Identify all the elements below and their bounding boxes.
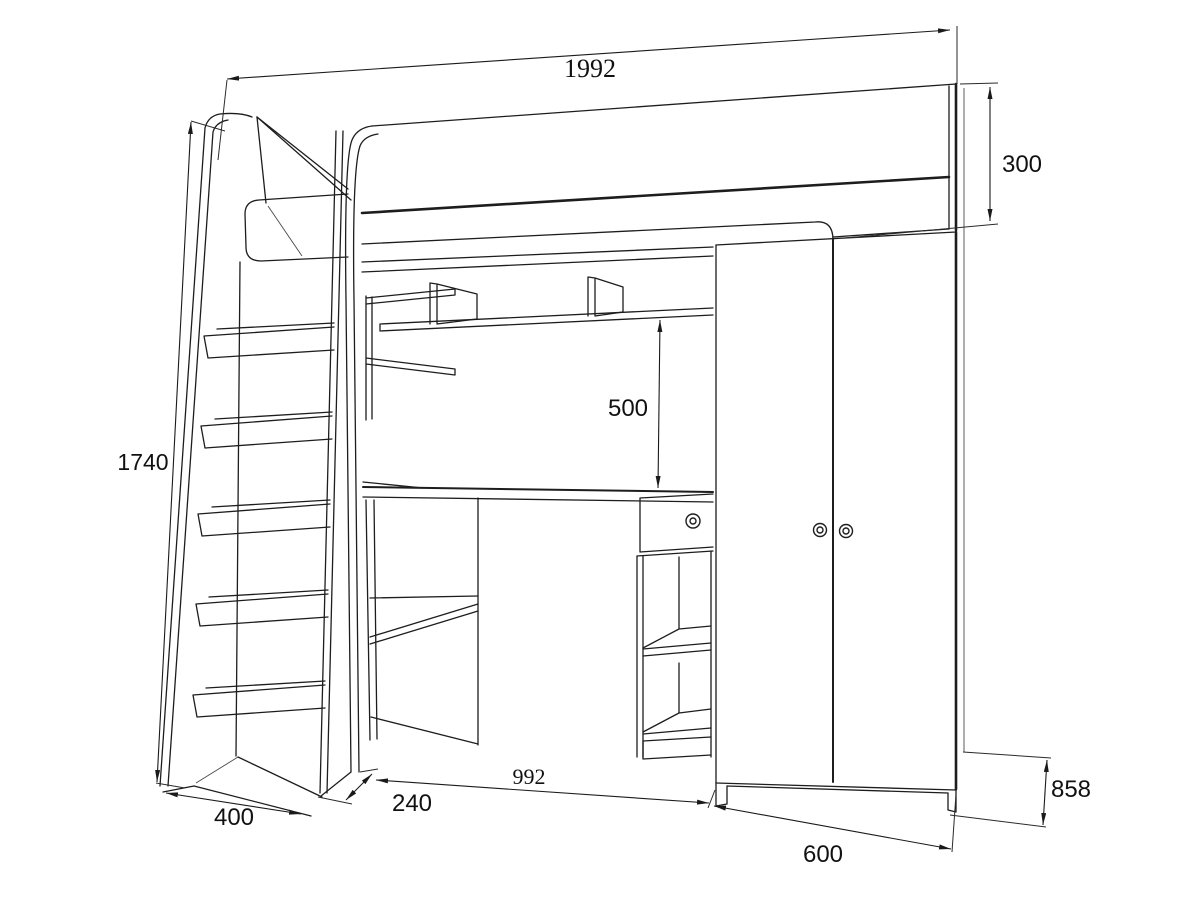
dim-label-992: 992 [513, 764, 546, 789]
dimension-ladder-depth: 400 [166, 793, 301, 831]
dim-label-240: 240 [392, 790, 432, 817]
drawing-canvas: 1992 300 1740 500 400 240 992 600 [0, 0, 1200, 899]
wardrobe-left-knob-icon [814, 524, 827, 537]
loft-bed-dimension-drawing: 1992 300 1740 500 400 240 992 600 [0, 0, 1200, 899]
pillow [257, 117, 351, 256]
ladder-steps [193, 323, 334, 717]
drawer-knob-icon [686, 514, 700, 528]
wardrobe [716, 232, 956, 812]
side-shelf-unit [366, 289, 455, 420]
dim-label-300: 300 [1002, 151, 1042, 178]
dim-label-500: 500 [608, 395, 648, 422]
dimension-shelf-to-desk: 500 [608, 320, 660, 488]
dim-label-600: 600 [803, 841, 843, 868]
desk [363, 482, 713, 745]
dimension-guard-rail-height: 300 [845, 83, 1042, 238]
ladder-rail [320, 131, 343, 793]
dim-label-1740: 1740 [117, 449, 168, 475]
drawer-knob-dot-icon [690, 518, 696, 524]
bed-post [346, 126, 378, 772]
dimension-ladder-offset: 240 [318, 769, 432, 817]
dimension-wardrobe-side: 858 [950, 752, 1091, 827]
dim-label-400: 400 [214, 804, 254, 831]
dim-label-1992: 1992 [564, 54, 616, 83]
cubby-shelves [637, 551, 713, 759]
dimension-overall-width: 1992 [218, 26, 957, 160]
wardrobe-right-knob-icon [840, 525, 853, 538]
wall-shelf [380, 277, 713, 331]
bed-guard-panel [362, 84, 964, 752]
desk-drawer [640, 494, 713, 552]
dim-label-858: 858 [1051, 776, 1091, 803]
dimension-wardrobe-width: 600 [708, 790, 956, 868]
